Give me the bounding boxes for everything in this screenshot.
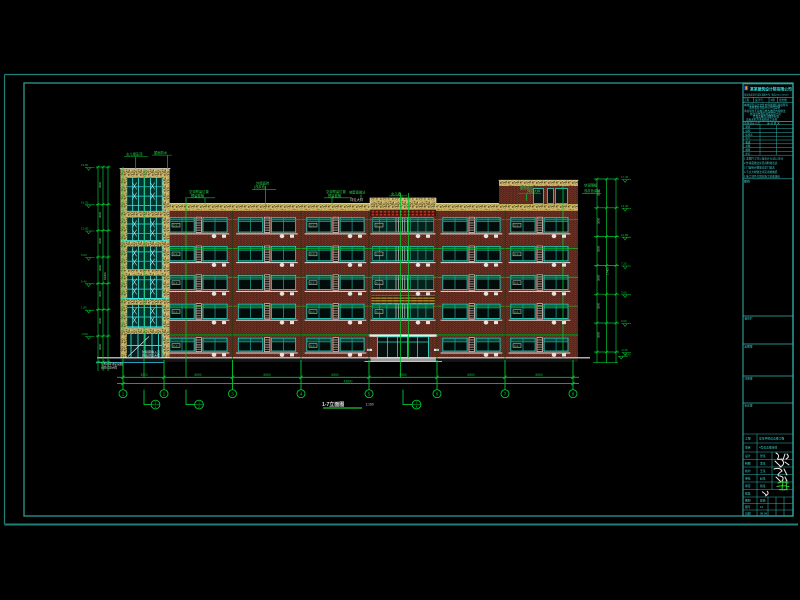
svg-text:2.外墙面做法详见材料做法表: 2.外墙面做法详见材料做法表 bbox=[744, 161, 778, 165]
svg-text:审定: 审定 bbox=[746, 151, 751, 155]
svg-text:女儿墙压顶: 女儿墙压顶 bbox=[126, 152, 143, 157]
svg-text:C-1: C-1 bbox=[173, 344, 178, 348]
svg-text:C-1: C-1 bbox=[514, 223, 519, 227]
svg-text:批准: 批准 bbox=[745, 492, 751, 496]
svg-text:C-1: C-1 bbox=[173, 223, 178, 227]
svg-text:5.40: 5.40 bbox=[81, 279, 87, 283]
svg-text:室外地坪详见总图: 室外地坪详见总图 bbox=[101, 362, 123, 366]
svg-text:设计号: 设计号 bbox=[755, 98, 763, 102]
svg-text:-0.60: -0.60 bbox=[81, 332, 88, 336]
svg-text:校对: 校对 bbox=[745, 469, 751, 473]
svg-text:1: 1 bbox=[198, 401, 200, 405]
svg-text:建施: 建施 bbox=[760, 499, 766, 503]
svg-text:坡屋面做法: 坡屋面做法 bbox=[349, 190, 366, 195]
svg-text:4: 4 bbox=[416, 405, 418, 409]
svg-text:预留套管: 预留套管 bbox=[328, 193, 342, 198]
svg-text:会签栏: 会签栏 bbox=[745, 317, 753, 321]
svg-text:3600: 3600 bbox=[98, 317, 102, 324]
svg-text:赵某: 赵某 bbox=[760, 476, 766, 480]
svg-text:0.00: 0.00 bbox=[621, 319, 627, 323]
svg-text:电气: 电气 bbox=[746, 136, 751, 140]
svg-text:C-1: C-1 bbox=[310, 344, 315, 348]
svg-text:日期: 日期 bbox=[745, 512, 751, 516]
svg-text:43800: 43800 bbox=[344, 379, 353, 383]
svg-text:3300: 3300 bbox=[140, 373, 147, 377]
svg-text:某某建筑设计院有限公司: 某某建筑设计院有限公司 bbox=[749, 87, 792, 92]
svg-text:17400: 17400 bbox=[606, 267, 610, 275]
svg-text:C-1: C-1 bbox=[514, 252, 519, 256]
svg-text:3600: 3600 bbox=[98, 264, 102, 271]
svg-text:1:100: 1:100 bbox=[366, 402, 374, 406]
svg-text:浅灰色涂料: 浅灰色涂料 bbox=[584, 188, 601, 193]
svg-text:C-1: C-1 bbox=[310, 223, 315, 227]
svg-text:项目: 项目 bbox=[745, 446, 751, 450]
svg-text:19200: 19200 bbox=[103, 272, 107, 280]
svg-text:16.20: 16.20 bbox=[81, 200, 89, 204]
svg-text:李某: 李某 bbox=[760, 461, 766, 465]
svg-text:做法详见大样: 做法详见大样 bbox=[142, 353, 160, 358]
svg-text:3600: 3600 bbox=[597, 331, 601, 338]
svg-text:C-1: C-1 bbox=[310, 252, 315, 256]
svg-text:钱某: 钱某 bbox=[760, 484, 766, 488]
svg-text:3600: 3600 bbox=[98, 211, 102, 218]
svg-text:图别: 图别 bbox=[745, 499, 751, 503]
svg-text:3600: 3600 bbox=[597, 245, 601, 252]
svg-text:建筑: 建筑 bbox=[746, 125, 751, 129]
svg-text:制图: 制图 bbox=[745, 461, 751, 465]
svg-text:审定章: 审定章 bbox=[745, 404, 753, 408]
svg-text:3600: 3600 bbox=[597, 217, 601, 224]
svg-text:图号: 图号 bbox=[745, 505, 751, 509]
svg-text:屋面防水: 屋面防水 bbox=[154, 150, 168, 155]
svg-text:1: 1 bbox=[155, 405, 157, 409]
svg-text:女儿墙: 女儿墙 bbox=[391, 191, 402, 196]
svg-text:C-1: C-1 bbox=[173, 252, 178, 256]
svg-text:3600: 3600 bbox=[98, 237, 102, 244]
svg-text:6900: 6900 bbox=[399, 373, 406, 377]
svg-text:注册章: 注册章 bbox=[745, 377, 753, 381]
svg-text:(浅灰色): (浅灰色) bbox=[254, 184, 266, 189]
svg-text:1-7立面图: 1-7立面图 bbox=[322, 401, 344, 408]
svg-text:3期: 3期 bbox=[771, 98, 775, 102]
svg-text:预留套管: 预留套管 bbox=[191, 193, 205, 198]
svg-text:C-1: C-1 bbox=[376, 310, 381, 314]
svg-text:C-1: C-1 bbox=[514, 281, 519, 285]
svg-text:7: 7 bbox=[504, 392, 507, 397]
svg-text:5: 5 bbox=[368, 392, 371, 397]
svg-text:6: 6 bbox=[436, 392, 439, 397]
svg-text:总图: 总图 bbox=[746, 144, 751, 148]
svg-text:暖通: 暖通 bbox=[746, 140, 751, 144]
svg-text:王某: 王某 bbox=[760, 469, 766, 473]
svg-text:6900: 6900 bbox=[535, 373, 542, 377]
svg-text:8: 8 bbox=[572, 392, 575, 397]
svg-text:工程: 工程 bbox=[744, 98, 750, 102]
svg-text:08.06: 08.06 bbox=[760, 512, 767, 516]
svg-text:1: 1 bbox=[155, 401, 157, 405]
svg-text:结构: 结构 bbox=[746, 129, 751, 133]
svg-text:详见大样: 详见大样 bbox=[527, 189, 541, 194]
svg-text:6900: 6900 bbox=[194, 373, 201, 377]
svg-text:C-1: C-1 bbox=[376, 224, 381, 228]
svg-text:3600: 3600 bbox=[597, 302, 601, 309]
svg-text:7.20: 7.20 bbox=[621, 262, 627, 266]
svg-text:6900: 6900 bbox=[467, 373, 474, 377]
svg-text:概算: 概算 bbox=[746, 148, 751, 152]
svg-text:4: 4 bbox=[300, 392, 303, 397]
svg-text:张某: 张某 bbox=[760, 454, 766, 458]
svg-text:4.节点大样做法详见详图图纸: 4.节点大样做法详见详图图纸 bbox=[744, 170, 778, 174]
svg-text:17.40: 17.40 bbox=[621, 175, 629, 179]
svg-text:C-1: C-1 bbox=[376, 281, 381, 285]
svg-text:详见大样: 详见大样 bbox=[350, 197, 364, 202]
svg-text:C-1: C-1 bbox=[310, 281, 315, 285]
svg-text:台阶详见大样: 台阶详见大样 bbox=[101, 366, 117, 370]
svg-text:2: 2 bbox=[198, 405, 200, 409]
svg-text:12: 12 bbox=[760, 505, 764, 509]
svg-text:违者必究并承担相应之责任: 违者必究并承担相应之责任 bbox=[746, 117, 778, 121]
svg-text:3600: 3600 bbox=[98, 181, 102, 188]
svg-text:C-1: C-1 bbox=[173, 281, 178, 285]
svg-text:4号宿舍楼单体: 4号宿舍楼单体 bbox=[759, 446, 778, 450]
svg-text:3.门窗统计数量详见门窗表: 3.门窗统计数量详见门窗表 bbox=[744, 166, 775, 170]
svg-text:宿舍楼: 宿舍楼 bbox=[779, 98, 787, 102]
svg-text:1.80: 1.80 bbox=[81, 306, 87, 310]
svg-text:6900: 6900 bbox=[331, 373, 338, 377]
svg-text:C-1: C-1 bbox=[514, 344, 519, 348]
svg-text:1.本图尺寸均以毫米计 标高以米计: 1.本图尺寸均以毫米计 标高以米计 bbox=[744, 157, 784, 161]
svg-text:审定: 审定 bbox=[745, 484, 751, 488]
svg-text:3.60: 3.60 bbox=[621, 290, 627, 294]
svg-text:出图章: 出图章 bbox=[745, 345, 753, 349]
svg-text:C-1: C-1 bbox=[514, 310, 519, 314]
svg-text:C-1: C-1 bbox=[376, 252, 381, 256]
svg-text:3600: 3600 bbox=[98, 343, 102, 350]
svg-text:3: 3 bbox=[231, 392, 234, 397]
svg-text:3600: 3600 bbox=[597, 274, 601, 281]
svg-text:10.80: 10.80 bbox=[621, 233, 629, 237]
svg-text:给排水: 给排水 bbox=[746, 132, 754, 136]
svg-text:1: 1 bbox=[122, 392, 125, 397]
svg-text:9.00: 9.00 bbox=[81, 253, 87, 257]
svg-text:1: 1 bbox=[416, 401, 418, 405]
svg-text:6900: 6900 bbox=[263, 373, 270, 377]
svg-text:3600: 3600 bbox=[98, 290, 102, 297]
svg-text:19.80: 19.80 bbox=[81, 163, 89, 167]
svg-text:2: 2 bbox=[163, 392, 166, 397]
svg-text:14.40: 14.40 bbox=[621, 204, 629, 208]
svg-text:设计: 设计 bbox=[745, 454, 751, 458]
svg-text:审核: 审核 bbox=[745, 476, 751, 480]
svg-text:某某学校宿舍楼工程: 某某学校宿舍楼工程 bbox=[759, 437, 784, 441]
svg-text:空调隔板: 空调隔板 bbox=[584, 183, 598, 188]
svg-text:工程: 工程 bbox=[745, 437, 751, 441]
svg-text:C-1: C-1 bbox=[173, 310, 178, 314]
svg-text:5.施工须符合国家施工验收规范: 5.施工须符合国家施工验收规范 bbox=[744, 174, 780, 178]
svg-text:C-1: C-1 bbox=[310, 310, 315, 314]
svg-text:-0.45: -0.45 bbox=[624, 352, 631, 356]
svg-text:图例: 图例 bbox=[744, 178, 750, 183]
svg-text:12.60: 12.60 bbox=[81, 227, 89, 231]
